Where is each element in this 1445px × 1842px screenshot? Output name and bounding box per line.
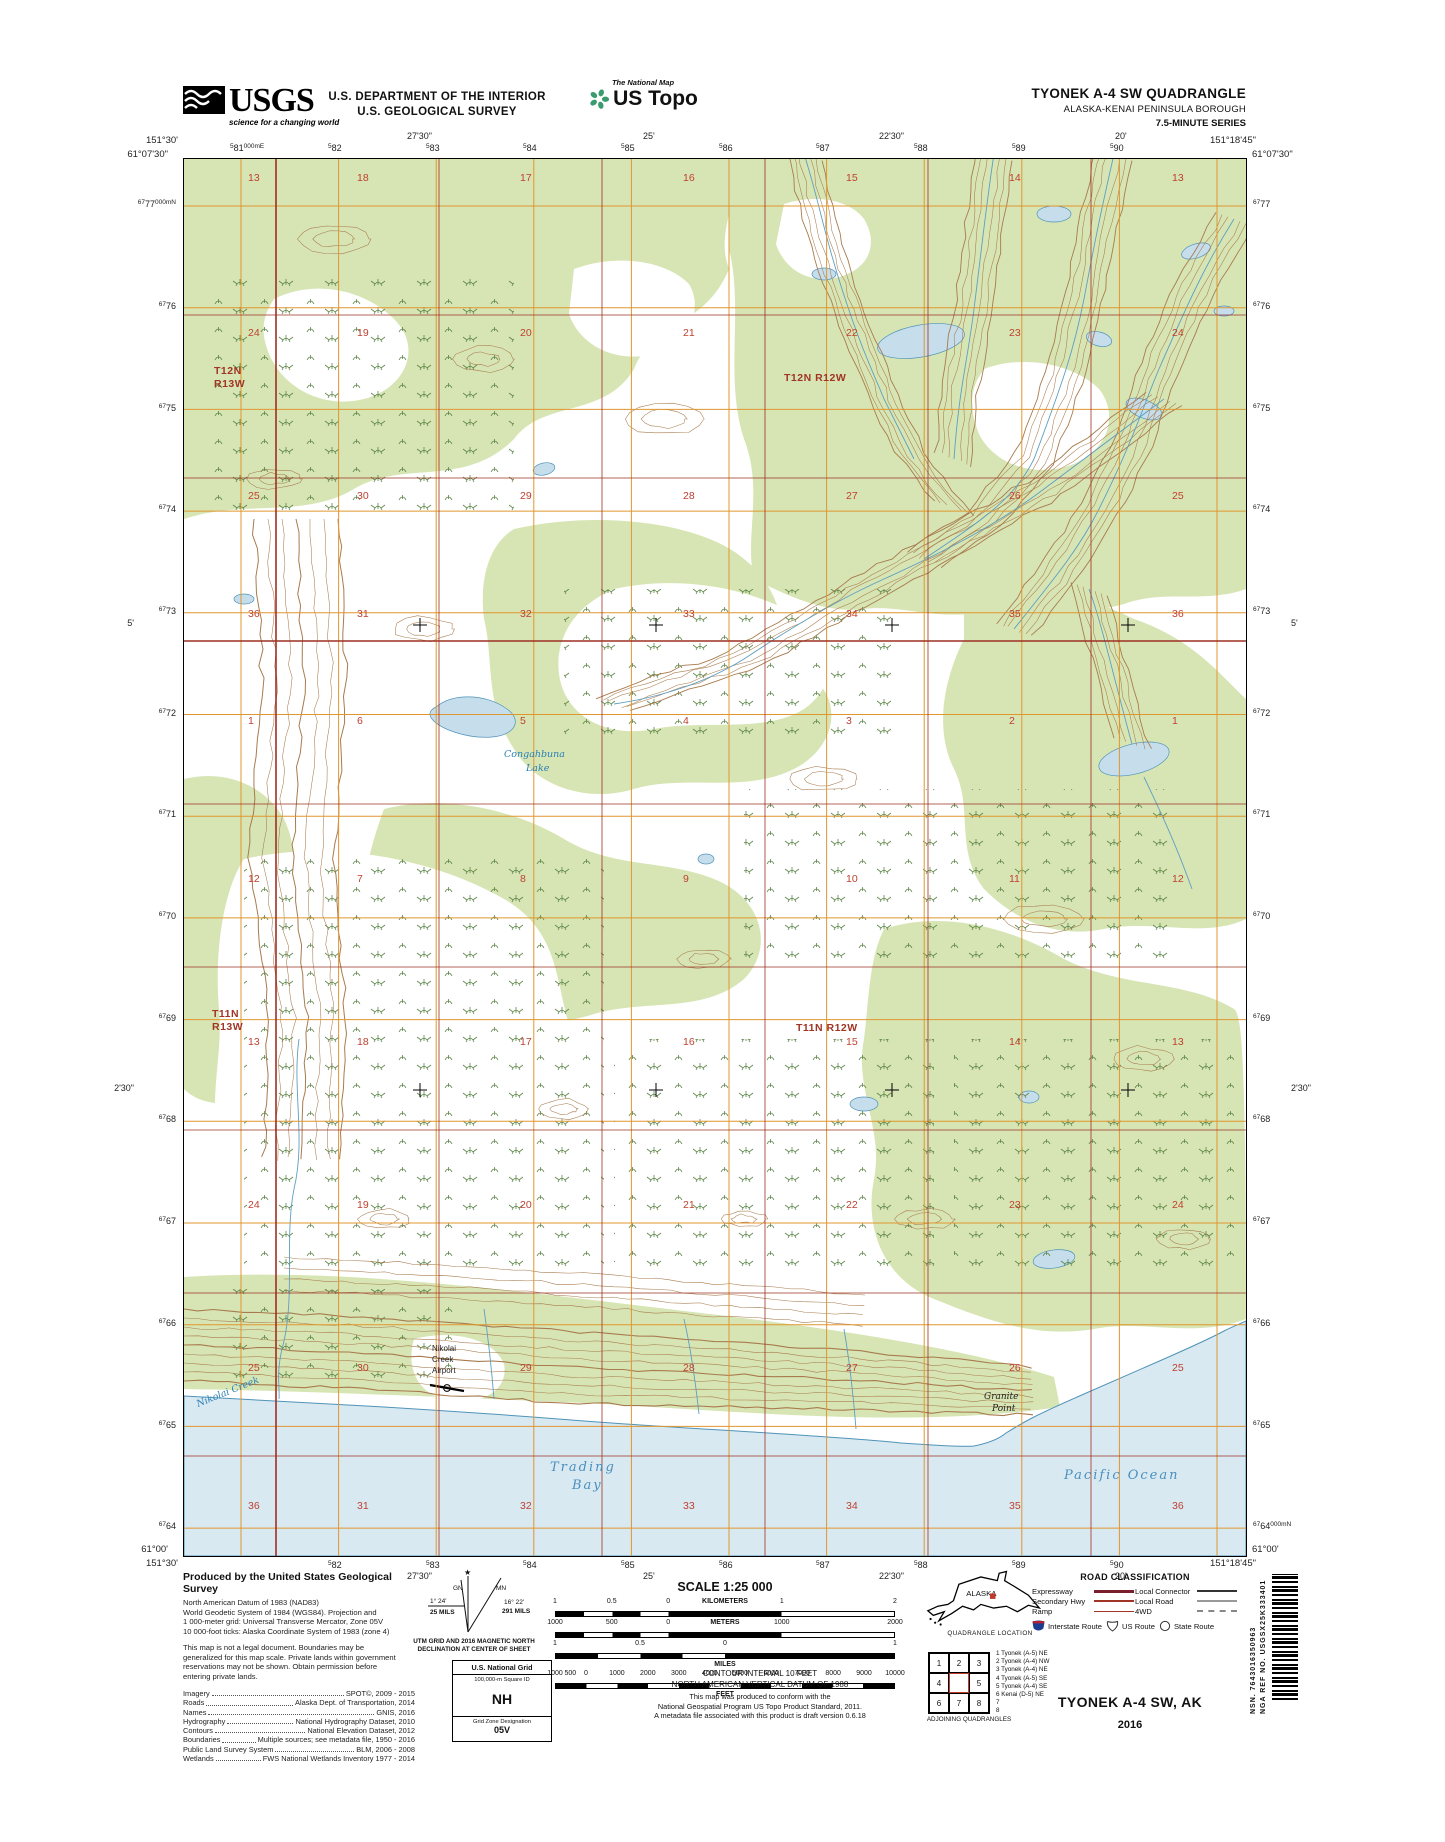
nga-ref-number: NGA REF NO. USGSX25K333401 [1260, 1574, 1267, 1714]
road-classification-title: ROAD CLASSIFICATION [1032, 1572, 1238, 1582]
latitude-minute-label: 5' [127, 618, 134, 628]
road-class-item: Ramp [1032, 1606, 1135, 1616]
adjoining-cell: 3 [969, 1653, 989, 1673]
easting-label: 585 [621, 1560, 635, 1570]
northing-label: 6769 [1253, 1013, 1270, 1023]
adjoining-name: 3 Tyonek (A-4) NE [996, 1666, 1116, 1674]
usng-square-id: NH [453, 1691, 551, 1707]
edge-labels-top: 581000mE58258358458558658758858959027'30… [183, 130, 1245, 156]
section-number: 19 [357, 1199, 369, 1211]
northing-label: 6768 [1253, 1114, 1270, 1124]
northing-label: 6777000mN [138, 199, 176, 209]
easting-label: 590 [1110, 1560, 1124, 1570]
latitude-minute-label: 5' [1291, 618, 1298, 628]
sheet-name-block: TYONEK A-4 SW, AK 2016 [1000, 1694, 1260, 1731]
edge-labels-left: 6777000mN6776677567746773677267716770676… [60, 158, 180, 1555]
svg-text:291 MILS: 291 MILS [502, 1608, 531, 1615]
adjoining-cell: 7 [949, 1693, 969, 1713]
road-class-item: Local Road [1135, 1596, 1238, 1606]
section-number: 12 [1172, 873, 1184, 885]
scale-bar-mi [555, 1653, 895, 1659]
route-shield-item: US Route [1106, 1620, 1155, 1632]
northing-label: 6772 [159, 708, 176, 718]
datum-line: North American Datum of 1983 (NAD83) [183, 1598, 415, 1608]
section-number: 25 [248, 1362, 260, 1374]
corner-nw-lon: 151°30' [38, 135, 178, 146]
quad-series: 7.5-MINUTE SERIES [880, 118, 1246, 129]
adjoining-grid: 12345678 [928, 1652, 990, 1714]
us-topo-label: US Topo [613, 87, 698, 111]
scale-bar-m [555, 1632, 895, 1638]
svg-text:1° 24': 1° 24' [430, 1597, 447, 1605]
legal-line: This map is not a legal document. Bounda… [183, 1643, 415, 1653]
section-number: 28 [683, 1362, 695, 1374]
easting-label: 590 [1110, 143, 1124, 153]
easting-label: 585 [621, 143, 635, 153]
longitude-minute-label: 22'30" [879, 131, 904, 141]
scale-title: SCALE 1:25 000 [555, 1580, 895, 1594]
northing-label: 6771 [159, 809, 176, 819]
sheet-name: TYONEK A-4 SW, AK [1000, 1694, 1260, 1710]
section-number: 34 [846, 1500, 858, 1512]
credit-row: Public Land Survey SystemBLM, 2006 - 200… [183, 1745, 415, 1754]
producer-block: Produced by the United States Geological… [183, 1571, 415, 1763]
credit-row: ContoursNational Elevation Dataset, 2012 [183, 1726, 415, 1735]
section-number: 18 [357, 1036, 369, 1048]
credit-row: WetlandsFWS National Wetlands Inventory … [183, 1754, 415, 1763]
sheet-year: 2016 [1000, 1719, 1260, 1731]
township-label: R13W [212, 1021, 243, 1033]
place-label: Pacific Ocean [1063, 1468, 1180, 1483]
easting-label: 583 [426, 143, 440, 153]
section-number: 26 [1009, 490, 1021, 502]
section-number: 13 [248, 1036, 260, 1048]
usng-square-id-label: 100,000-m Square ID [453, 1677, 551, 1683]
road-class-item: 4WD [1135, 1606, 1238, 1616]
legal-line: reservations may not be shown. Obtain pe… [183, 1662, 415, 1672]
corner-sw-lon: 151°30' [38, 1558, 178, 1569]
adjoining-name: 5 Tyonek (A-4) SE [996, 1683, 1116, 1691]
usng-zone: 05V [453, 1725, 551, 1735]
section-number: 10 [846, 873, 858, 885]
nsn-number: NSN. 7643016350963 [1250, 1574, 1257, 1714]
section-number: 6 [357, 715, 363, 727]
place-label: Bay [571, 1478, 603, 1493]
easting-label: 587 [816, 1560, 830, 1570]
section-number: 29 [520, 490, 532, 502]
section-number: 36 [1172, 1500, 1184, 1512]
section-number: 16 [683, 172, 695, 184]
section-number: 28 [683, 490, 695, 502]
place-label: Lake [525, 763, 550, 774]
section-number: 23 [1009, 1199, 1021, 1211]
township-label: T12N [214, 365, 242, 377]
section-number: 13 [1172, 172, 1184, 184]
road-class-item: Local Connector [1135, 1586, 1238, 1596]
data-credits: ImagerySPOT©, 2009 - 2015RoadsAlaska Dep… [183, 1689, 415, 1763]
section-number: 34 [846, 608, 858, 620]
declination-caption: UTM GRID AND 2016 MAGNETIC NORTH DECLINA… [404, 1638, 544, 1654]
section-number: 24 [1172, 1199, 1184, 1211]
section-number: 16 [683, 1036, 695, 1048]
longitude-minute-label: 25' [643, 131, 655, 141]
declination-diagram: ★ GN MN 1° 24' 25 MILS 16° 22' 291 MILS [398, 1566, 548, 1636]
section-number: 15 [846, 172, 858, 184]
northing-label: 6766 [159, 1318, 176, 1328]
latitude-minute-label: 2'30" [114, 1083, 134, 1093]
northing-label: 6769 [159, 1013, 176, 1023]
section-number: 14 [1009, 1036, 1021, 1048]
township-label: T11N R12W [796, 1022, 858, 1034]
credit-row: ImagerySPOT©, 2009 - 2015 [183, 1689, 415, 1698]
department-line1: U.S. DEPARTMENT OF THE INTERIOR [262, 90, 612, 105]
section-number: 32 [520, 1500, 532, 1512]
section-number: 21 [683, 1199, 695, 1211]
quad-subtitle-borough: ALASKA-KENAI PENINSULA BOROUGH [880, 104, 1246, 115]
adjoining-cell: 5 [969, 1673, 989, 1693]
northing-label: 6774 [159, 504, 176, 514]
svg-text:25 MILS: 25 MILS [430, 1609, 455, 1616]
contour-interval-note: CONTOUR INTERVAL 10 FEET NORTH AMERICAN … [560, 1668, 960, 1690]
section-number: 25 [248, 490, 260, 502]
mn-label: MN [496, 1585, 506, 1592]
credit-row: NamesGNIS, 2016 [183, 1708, 415, 1717]
legal-notes: This map is not a legal document. Bounda… [183, 1643, 415, 1681]
northing-label: 6770 [1253, 911, 1270, 921]
easting-label: 584 [523, 143, 537, 153]
section-number: 21 [683, 327, 695, 339]
department-heading: U.S. DEPARTMENT OF THE INTERIOR U.S. GEO… [262, 90, 612, 120]
section-number: 4 [683, 715, 689, 727]
section-number: 36 [248, 1500, 260, 1512]
northing-label: 6768 [159, 1114, 176, 1124]
us-route-shield-icon [1106, 1620, 1119, 1632]
road-classification: ROAD CLASSIFICATION ExpresswaySecondary … [1032, 1572, 1238, 1632]
section-number: 29 [520, 1362, 532, 1374]
road-class-item: Secondary Hwy [1032, 1596, 1135, 1606]
section-number: 27 [846, 490, 858, 502]
northing-label: 6772 [1253, 708, 1270, 718]
section-number: 2 [1009, 715, 1015, 727]
barcode [1272, 1574, 1298, 1700]
section-number: 20 [520, 1199, 532, 1211]
credit-row: BoundariesMultiple sources; see metadata… [183, 1735, 415, 1744]
section-number: 15 [846, 1036, 858, 1048]
northing-label: 6766 [1253, 1318, 1270, 1328]
section-number: 3 [846, 715, 852, 727]
adjoining-cell: 1 [929, 1653, 949, 1673]
department-line2: U.S. GEOLOGICAL SURVEY [262, 105, 612, 120]
northing-label: 6775 [159, 403, 176, 413]
easting-label: 586 [719, 143, 733, 153]
datum-line: 10 000-foot ticks: Alaska Coordinate Sys… [183, 1627, 415, 1637]
section-number: 8 [520, 873, 526, 885]
township-label: T12N R12W [784, 372, 846, 384]
corner-ne-lon: 151°18'45" [1210, 135, 1360, 146]
northing-label: 6777 [1253, 199, 1270, 209]
section-number: 7 [357, 873, 363, 885]
corner-se-lat: 61°00' [1252, 1544, 1392, 1555]
adjoining-name: 4 Tyonek (A-5) SE [996, 1675, 1116, 1683]
section-number: 27 [846, 1362, 858, 1374]
usng-zone-label: Grid Zone Designation [453, 1716, 551, 1725]
datum-line: World Geodetic System of 1984 (WGS84). P… [183, 1608, 415, 1618]
northing-label: 6765 [159, 1420, 176, 1430]
northing-label: 6776 [159, 301, 176, 311]
topo-terrain: 1318171615141324192021222324253029282726… [184, 159, 1246, 1556]
place-label: Creek [432, 1355, 454, 1364]
place-label: Trading [550, 1460, 616, 1475]
easting-label: 581000mE [230, 143, 264, 153]
section-number: 22 [846, 1199, 858, 1211]
national-map-label: The National Map [578, 78, 708, 87]
corner-se-lon: 151°18'45" [1210, 1558, 1360, 1569]
section-number: 17 [520, 172, 532, 184]
quad-title-block: TYONEK A-4 SW QUADRANGLE ALASKA-KENAI PE… [880, 86, 1246, 129]
producer-title: Produced by the United States Geological… [183, 1571, 415, 1595]
section-number: 30 [357, 490, 369, 502]
place-label: Granite [984, 1392, 1018, 1402]
section-number: 23 [1009, 327, 1021, 339]
place-label: Nikolai [432, 1344, 456, 1353]
section-number: 24 [248, 327, 260, 339]
section-number: 30 [357, 1362, 369, 1374]
easting-label: 587 [816, 143, 830, 153]
northing-label: 6771 [1253, 809, 1270, 819]
section-number: 18 [357, 172, 369, 184]
latitude-minute-label: 2'30" [1291, 1083, 1311, 1093]
edge-labels-right: 6777677667756774677367726771677067696768… [1249, 158, 1399, 1555]
longitude-minute-label: 27'30" [407, 131, 432, 141]
adjoining-name: 2 Tyonek (A-4) NW [996, 1658, 1116, 1666]
usng-box: U.S. National Grid 100,000-m Square ID N… [452, 1660, 552, 1742]
datum-line: 1 000-meter grid: Universal Transverse M… [183, 1617, 415, 1627]
northing-label: 6775 [1253, 403, 1270, 413]
easting-label: 589 [1012, 143, 1026, 153]
northing-label: 6765 [1253, 1420, 1270, 1430]
section-number: 32 [520, 608, 532, 620]
svg-text:★: ★ [464, 1568, 471, 1577]
place-label: Congahbuna [504, 749, 565, 760]
adjoining-cell: 2 [949, 1653, 969, 1673]
section-number: 9 [683, 873, 689, 885]
section-number: 35 [1009, 1500, 1021, 1512]
section-number: 25 [1172, 1362, 1184, 1374]
northing-label: 6767 [159, 1216, 176, 1226]
map-canvas: 1318171615141324192021222324253029282726… [183, 158, 1247, 1557]
usgs-wave-icon [183, 86, 225, 122]
section-number: 1 [1172, 715, 1178, 727]
easting-label: 588 [914, 143, 928, 153]
section-number: 35 [1009, 608, 1021, 620]
section-number: 14 [1009, 172, 1021, 184]
northing-label: 6764 [159, 1521, 176, 1531]
route-shield-item: Interstate Route [1032, 1620, 1102, 1632]
section-number: 13 [1172, 1036, 1184, 1048]
adjoining-cell: 4 [929, 1673, 949, 1693]
section-number: 26 [1009, 1362, 1021, 1374]
credit-row: RoadsAlaska Dept. of Transportation, 201… [183, 1698, 415, 1707]
corner-ne-lat: 61°07'30" [1252, 149, 1402, 160]
easting-label: 582 [328, 143, 342, 153]
section-number: 5 [520, 715, 526, 727]
section-number: 33 [683, 608, 695, 620]
northing-label: 6767 [1253, 1216, 1270, 1226]
section-number: 33 [683, 1500, 695, 1512]
adjoining-name: 1 Tyonek (A-5) NE [996, 1650, 1116, 1658]
longitude-minute-label: 20' [1115, 131, 1127, 141]
interstate-shield-icon [1032, 1620, 1045, 1632]
scale-bar-km [555, 1611, 895, 1617]
national-map-logo: The National Map US Topo [578, 78, 708, 111]
datum-notes: North American Datum of 1983 (NAD83)Worl… [183, 1598, 415, 1636]
place-label: Airport [432, 1366, 456, 1375]
northing-label: 6773 [1253, 606, 1270, 616]
adjoining-cell: 6 [929, 1693, 949, 1713]
northing-label: 6773 [159, 606, 176, 616]
section-number: 24 [1172, 327, 1184, 339]
usng-title: U.S. National Grid [453, 1661, 551, 1675]
section-number: 12 [248, 873, 260, 885]
state-route-circle-icon [1159, 1620, 1171, 1632]
quad-title: TYONEK A-4 SW QUADRANGLE [880, 86, 1246, 101]
township-label: R13W [214, 378, 245, 390]
section-number: 20 [520, 327, 532, 339]
road-class-item: Expressway [1032, 1586, 1135, 1596]
svg-text:16° 22': 16° 22' [504, 1598, 524, 1606]
township-label: T11N [212, 1008, 239, 1020]
section-number: 11 [1009, 873, 1020, 885]
section-number: 36 [248, 608, 260, 620]
route-shield-item: State Route [1159, 1620, 1214, 1632]
section-number: 36 [1172, 608, 1184, 620]
corner-sw-lat: 61°00' [28, 1544, 168, 1555]
corner-nw-lat: 61°07'30" [18, 149, 168, 160]
adjoining-cell [949, 1673, 969, 1693]
section-number: 24 [248, 1199, 260, 1211]
section-number: 31 [357, 1500, 369, 1512]
easting-label: 586 [719, 1560, 733, 1570]
place-label: Point [991, 1404, 1016, 1414]
gn-label: GN [453, 1585, 463, 1592]
section-number: 25 [1172, 490, 1184, 502]
us-topo-pinwheel-icon [588, 88, 610, 110]
northing-label: 6776 [1253, 301, 1270, 311]
easting-label: 582 [328, 1560, 342, 1570]
northing-label: 6764000mN [1253, 1521, 1291, 1531]
section-number: 1 [248, 715, 254, 727]
legal-line: entering private lands. [183, 1672, 415, 1682]
section-number: 31 [357, 608, 369, 620]
section-number: 13 [248, 172, 260, 184]
adjoining-cell: 8 [969, 1693, 989, 1713]
northing-label: 6774 [1253, 504, 1270, 514]
section-number: 19 [357, 327, 369, 339]
usgs-topo-sheet: USGS science for a changing world U.S. D… [0, 0, 1445, 1842]
credit-row: HydrographyNational Hydrography Dataset,… [183, 1717, 415, 1726]
section-number: 17 [520, 1036, 532, 1048]
section-number: 22 [846, 327, 858, 339]
legal-line: generalized for this map scale. Private … [183, 1653, 415, 1663]
northing-label: 6770 [159, 911, 176, 921]
